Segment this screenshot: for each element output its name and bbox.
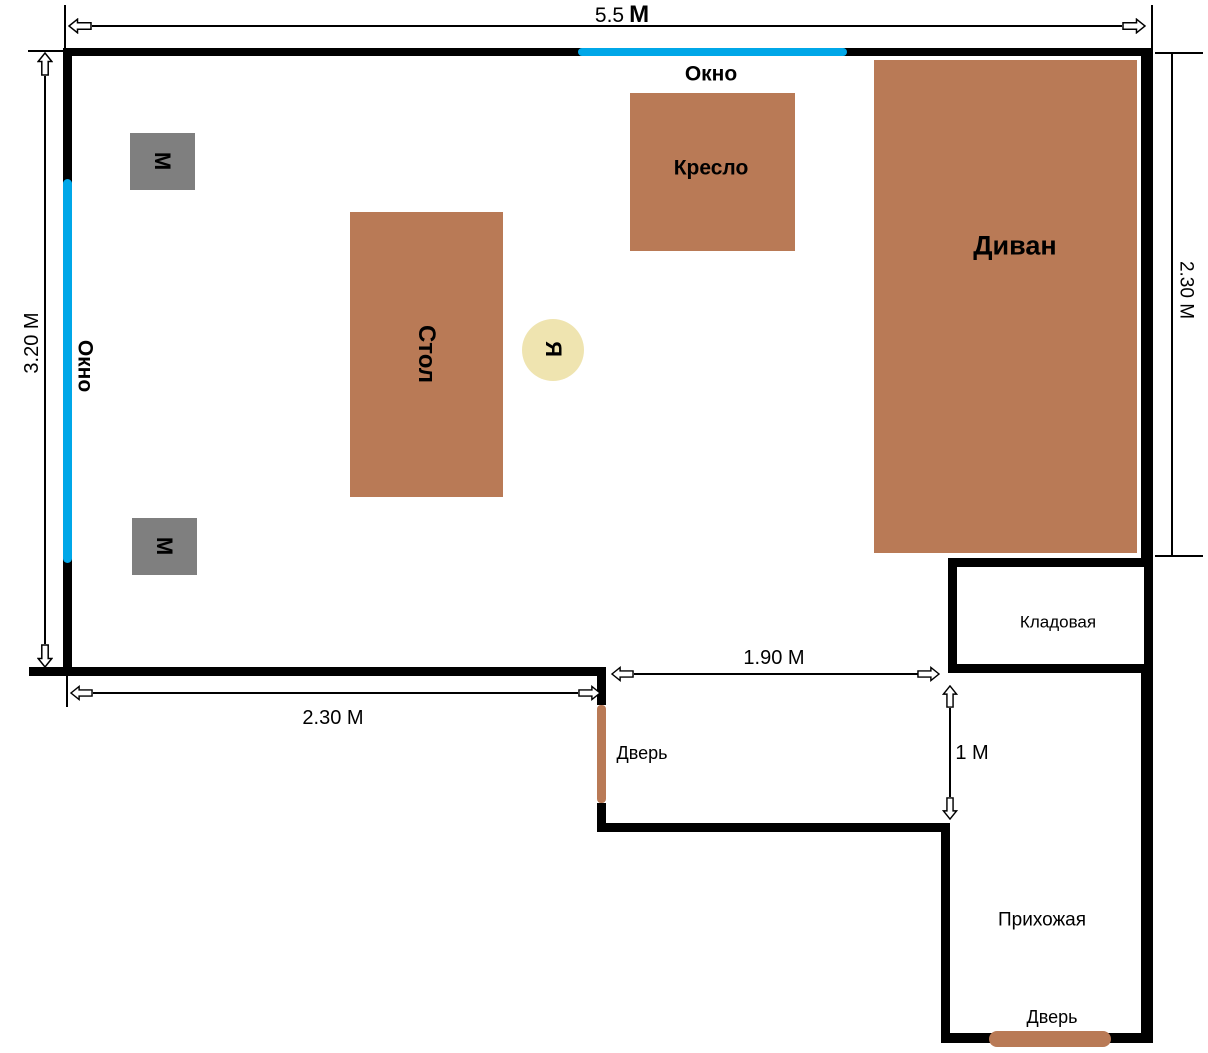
dim-left-arrow-down-icon bbox=[37, 644, 53, 668]
dim-bottom-tick bbox=[66, 676, 68, 707]
dim-sofa-line bbox=[1171, 54, 1173, 555]
dim-left-line bbox=[44, 76, 46, 644]
window-top bbox=[578, 48, 847, 56]
dim-left-label: 3.20 М bbox=[22, 312, 42, 373]
door-bottom bbox=[989, 1031, 1111, 1047]
dim-top-arrow-right-icon bbox=[1122, 18, 1146, 34]
dim-opening-arrow-right-icon bbox=[917, 666, 940, 682]
dim-passage-arrow-down-icon bbox=[942, 797, 958, 820]
wall-corridor-bottom bbox=[597, 823, 950, 832]
dim-sofa-tick-bottom bbox=[1155, 555, 1203, 557]
speaker-bottom-label: М bbox=[153, 537, 175, 555]
dim-sofa-label: 2.30 М bbox=[1177, 261, 1196, 319]
dim-passage-label: 1 М bbox=[955, 743, 988, 763]
storage-room-label: Кладовая bbox=[1020, 614, 1096, 631]
speaker-top-label: М bbox=[151, 152, 173, 170]
dim-bottom-line bbox=[93, 692, 578, 694]
door-middle-label: Дверь bbox=[617, 744, 668, 762]
dim-sofa-tick-top bbox=[1155, 52, 1203, 54]
person-marker-label: Я bbox=[542, 341, 564, 357]
dim-passage-arrow-up-icon bbox=[942, 685, 958, 708]
dim-top-arrow-left-icon bbox=[68, 18, 92, 34]
dim-top-label: 5.5 М bbox=[595, 3, 649, 27]
dim-passage-line bbox=[949, 708, 951, 797]
dim-bottom-arrow-right-icon bbox=[578, 685, 601, 701]
hallway-label: Прихожая bbox=[998, 911, 1086, 930]
window-left-label: Окно bbox=[75, 340, 96, 392]
dim-top-tick-left bbox=[64, 5, 66, 48]
dim-bottom-arrow-left-icon bbox=[70, 685, 93, 701]
wall-right bbox=[1141, 48, 1153, 1043]
dim-left-arrow-up-icon bbox=[37, 52, 53, 76]
window-top-label: Окно bbox=[685, 64, 737, 85]
dim-opening-line bbox=[634, 673, 918, 675]
door-bottom-label: Дверь bbox=[1027, 1008, 1078, 1026]
dim-opening-label: 1.90 М bbox=[743, 648, 804, 668]
sofa bbox=[874, 60, 1137, 553]
window-left bbox=[63, 179, 72, 563]
dim-top-value: 5.5 bbox=[595, 5, 624, 26]
sofa-label: Диван bbox=[973, 233, 1056, 260]
table-label: Стол bbox=[414, 325, 438, 383]
dim-bottom-label: 2.30 М bbox=[302, 708, 363, 728]
wall-hallway-left bbox=[941, 823, 950, 1043]
floor-plan: Окно Окно Дверь Дверь Кладовая Прихожая … bbox=[0, 0, 1208, 1053]
armchair-label: Кресло bbox=[674, 158, 749, 179]
wall-bottom-main bbox=[29, 667, 606, 676]
dim-top-unit: М bbox=[629, 3, 649, 27]
door-middle bbox=[597, 705, 606, 803]
dim-opening-arrow-left-icon bbox=[611, 666, 634, 682]
dim-top-tick-right bbox=[1151, 5, 1153, 48]
